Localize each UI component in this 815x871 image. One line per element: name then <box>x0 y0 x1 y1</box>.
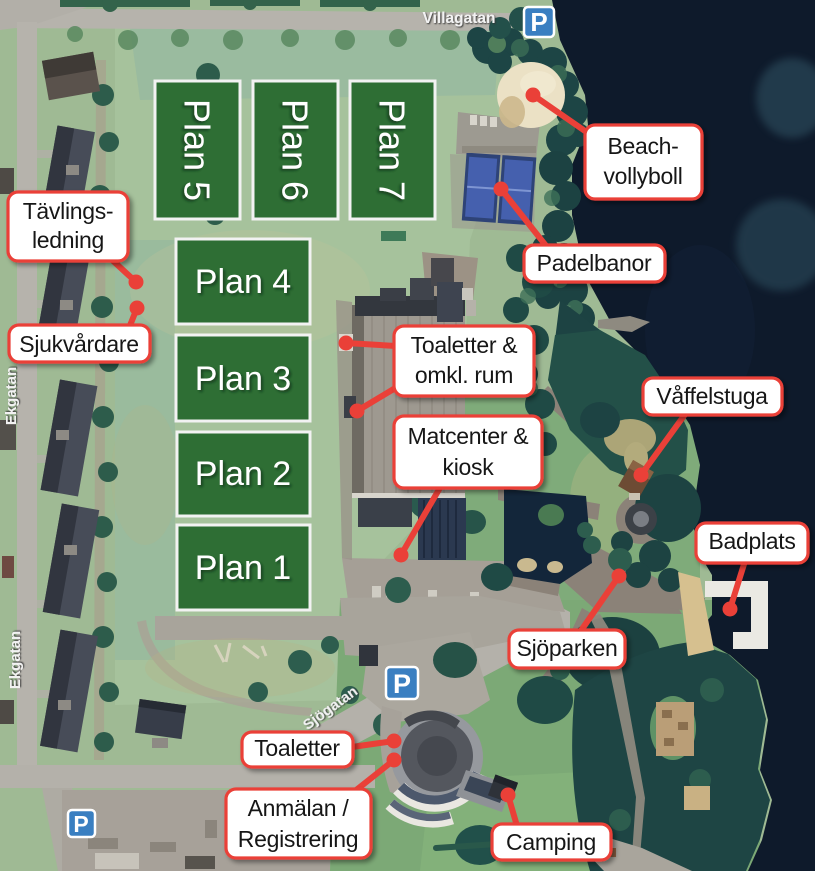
svg-text:P: P <box>73 811 88 837</box>
svg-text:omkl. rum: omkl. rum <box>415 362 513 388</box>
svg-text:Camping: Camping <box>506 829 596 855</box>
svg-text:P: P <box>393 669 411 699</box>
svg-text:Padelbanor: Padelbanor <box>537 250 652 276</box>
svg-text:Toaletter &: Toaletter & <box>411 332 518 358</box>
svg-text:Plan 6: Plan 6 <box>275 99 316 201</box>
svg-text:Matcenter &: Matcenter & <box>408 423 529 449</box>
svg-text:Sjukvårdare: Sjukvårdare <box>19 331 138 357</box>
svg-text:Plan 1: Plan 1 <box>195 549 291 587</box>
svg-text:Badplats: Badplats <box>708 528 795 554</box>
svg-text:Plan 3: Plan 3 <box>195 360 291 398</box>
svg-text:vollyboll: vollyboll <box>603 163 682 189</box>
svg-text:Ekgatan: Ekgatan <box>3 367 20 425</box>
svg-text:Ekgatan: Ekgatan <box>7 631 24 689</box>
svg-text:Anmälan /: Anmälan / <box>248 795 350 821</box>
svg-text:Toaletter: Toaletter <box>254 735 340 761</box>
svg-text:Sjöparken: Sjöparken <box>517 635 618 661</box>
svg-text:Beach-: Beach- <box>607 133 678 159</box>
svg-text:Tävlings-: Tävlings- <box>23 198 114 224</box>
svg-text:P: P <box>530 7 547 37</box>
svg-text:Registrering: Registrering <box>238 826 358 852</box>
svg-text:Plan 5: Plan 5 <box>177 99 218 201</box>
svg-text:kiosk: kiosk <box>443 454 495 480</box>
svg-text:Plan 7: Plan 7 <box>372 99 413 201</box>
svg-text:Våffelstuga: Våffelstuga <box>656 383 768 409</box>
svg-text:Plan 2: Plan 2 <box>195 455 291 493</box>
svg-text:ledning: ledning <box>32 227 104 253</box>
svg-text:Plan 4: Plan 4 <box>195 263 291 301</box>
svg-text:Villagatan: Villagatan <box>423 10 496 27</box>
